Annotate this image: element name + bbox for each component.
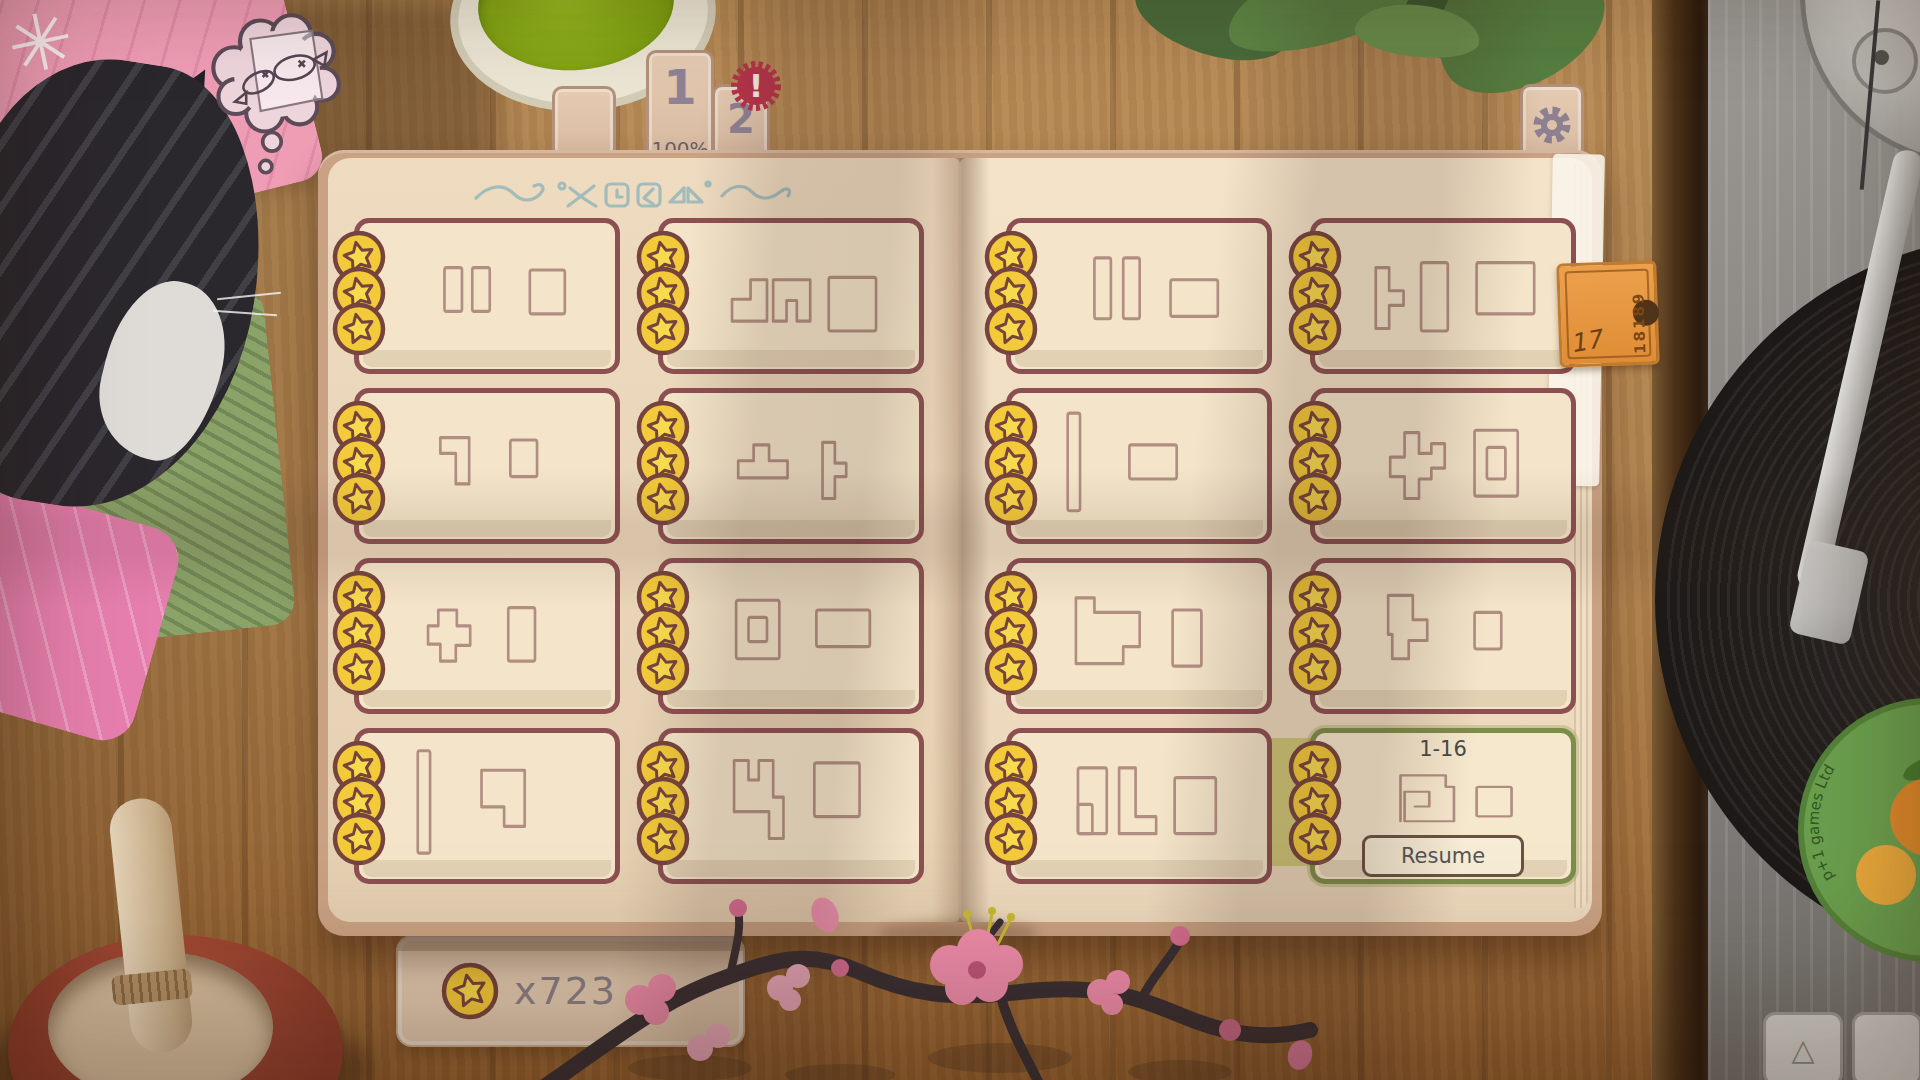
level-card-3[interactable] xyxy=(1006,218,1272,374)
level-card-10[interactable] xyxy=(658,558,924,714)
star-coins xyxy=(635,571,691,699)
star-coins xyxy=(635,231,691,359)
puzzle-thumbnail xyxy=(1347,571,1563,699)
level-card-12[interactable] xyxy=(1310,558,1576,714)
level-card-1[interactable] xyxy=(354,218,620,374)
level-range-label: 1-16 xyxy=(1315,737,1571,761)
svg-text:p+1 games Ltd: p+1 games Ltd xyxy=(1805,761,1839,884)
puzzle-thumbnail xyxy=(1347,759,1563,845)
turntable-spindle xyxy=(1852,28,1918,94)
level-card-16[interactable]: 1-16Resume xyxy=(1310,728,1576,884)
puzzle-thumbnail xyxy=(391,231,607,359)
doodle-header xyxy=(470,174,800,214)
level-card-8[interactable] xyxy=(1310,388,1576,544)
record-label-text: p+1 games Ltd xyxy=(1798,698,1920,950)
puzzle-thumbnail xyxy=(1043,571,1259,699)
player-button[interactable] xyxy=(1852,1012,1920,1080)
level-card-11[interactable] xyxy=(1006,558,1272,714)
cherry-blossom-branch xyxy=(480,880,1360,1080)
resume-button[interactable]: Resume xyxy=(1362,835,1524,877)
star-coins xyxy=(983,571,1039,699)
level-card-4[interactable] xyxy=(1310,218,1576,374)
notebook-spine xyxy=(932,158,990,922)
puzzle-thumbnail xyxy=(1347,401,1563,529)
level-card-2[interactable] xyxy=(658,218,924,374)
level-notebook: mES uAM 1-16Resume 18189 17 xyxy=(318,150,1602,936)
puzzle-thumbnail xyxy=(391,401,607,529)
puzzle-thumbnail xyxy=(391,741,607,869)
gear-icon xyxy=(1530,102,1574,148)
exclamation-icon: ! xyxy=(749,67,764,105)
puzzle-thumbnail xyxy=(695,741,911,869)
star-coins xyxy=(331,231,387,359)
puzzle-thumbnail xyxy=(1043,401,1259,529)
alert-badge: ! xyxy=(726,56,786,116)
star-coins xyxy=(1287,401,1343,529)
puzzle-thumbnail xyxy=(695,401,911,529)
star-coins xyxy=(983,401,1039,529)
star-coins xyxy=(1287,571,1343,699)
level-card-9[interactable] xyxy=(354,558,620,714)
level-card-6[interactable] xyxy=(658,388,924,544)
level-card-5[interactable] xyxy=(354,388,620,544)
puzzle-thumbnail xyxy=(1043,231,1259,359)
star-coins xyxy=(331,741,387,869)
tab-blank[interactable] xyxy=(552,86,616,159)
ticket-number: 17 xyxy=(1568,324,1604,358)
star-coins xyxy=(635,741,691,869)
star-coins xyxy=(331,401,387,529)
game-screen: ✳ xyxy=(0,0,1920,1080)
puzzle-thumbnail xyxy=(1347,231,1563,359)
level-card-15[interactable] xyxy=(1006,728,1272,884)
falling-petal xyxy=(807,894,844,937)
star-coins xyxy=(983,231,1039,359)
triangle-icon: △ xyxy=(1791,1032,1814,1067)
star-coins xyxy=(331,571,387,699)
tab-chapter-1[interactable]: 1 100% xyxy=(646,50,714,161)
level-card-13[interactable] xyxy=(354,728,620,884)
collectible-ticket: 18189 17 xyxy=(1556,260,1660,367)
star-coins xyxy=(635,401,691,529)
star-coins xyxy=(983,741,1039,869)
player-button[interactable]: △ xyxy=(1763,1012,1843,1080)
puzzle-thumbnail xyxy=(695,231,911,359)
puzzle-thumbnail xyxy=(1043,741,1259,869)
puzzle-thumbnail xyxy=(391,571,607,699)
star-coins xyxy=(1287,231,1343,359)
level-card-14[interactable] xyxy=(658,728,924,884)
puzzle-thumbnail xyxy=(695,571,911,699)
level-card-7[interactable] xyxy=(1006,388,1272,544)
tab-1-label: 1 xyxy=(663,63,696,111)
ticket-serial: 18189 xyxy=(1629,272,1650,355)
